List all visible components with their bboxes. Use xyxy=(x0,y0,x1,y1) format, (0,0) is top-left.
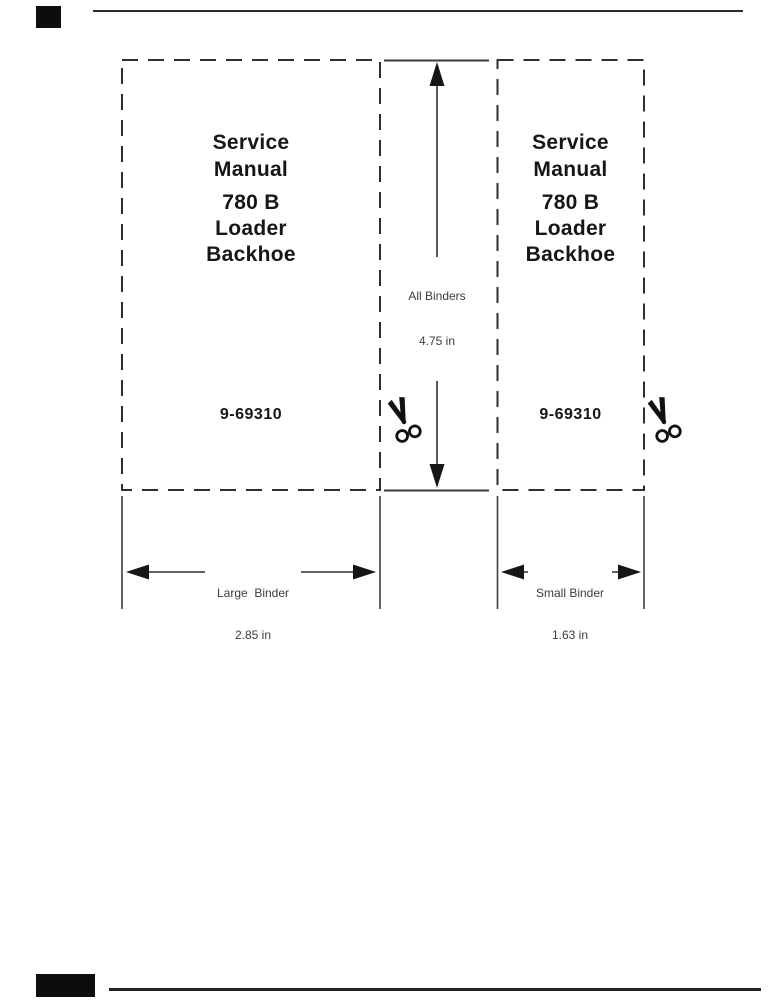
large-binder-outline xyxy=(122,60,380,490)
small-binder-width-dimension-label: Small Binder 1.63 in xyxy=(528,557,612,671)
small-binder-model-line3: Backhoe xyxy=(497,242,644,268)
scissors-icon xyxy=(646,396,686,446)
all-binders-value: 4.75 in xyxy=(389,334,485,349)
small-binder-part-number: 9-69310 xyxy=(497,406,644,424)
large-binder-model-line1: 780 B xyxy=(122,190,380,216)
large-width-arrowhead-right xyxy=(353,565,376,580)
small-width-arrowhead-right xyxy=(618,565,641,580)
height-arrowhead-down xyxy=(430,464,445,488)
small-width-arrowhead-left xyxy=(501,565,524,580)
large-binder-model-line2: Loader xyxy=(122,216,380,242)
large-binder-model-line3: Backhoe xyxy=(122,242,380,268)
large-binder-title-line2: Manual xyxy=(122,156,380,183)
large-binder-label: Large Binder xyxy=(205,586,301,600)
large-binder-spine-label: Service Manual 780 B Loader Backhoe xyxy=(122,129,380,268)
small-binder-model-line2: Loader xyxy=(497,216,644,242)
scissors-icon xyxy=(386,396,426,446)
large-binder-width-dimension-label: Large Binder 2.85 in xyxy=(205,557,301,671)
large-binder-part-number: 9-69310 xyxy=(122,406,380,424)
large-width-arrowhead-left xyxy=(126,565,149,580)
small-binder-model-line1: 780 B xyxy=(497,190,644,216)
large-binder-title-line1: Service xyxy=(122,129,380,156)
cut-template-linework xyxy=(0,0,774,1000)
height-arrowhead-up xyxy=(430,62,445,86)
small-binder-title-line2: Manual xyxy=(497,156,644,183)
small-binder-outline xyxy=(498,60,645,490)
manual-page: Service Manual 780 B Loader Backhoe 9-69… xyxy=(0,0,774,1000)
small-binder-title-line1: Service xyxy=(497,129,644,156)
all-binders-height-dimension-label: All Binders 4.75 in xyxy=(389,257,485,381)
small-binder-spine-label: Service Manual 780 B Loader Backhoe xyxy=(497,129,644,268)
large-binder-value: 2.85 in xyxy=(205,628,301,642)
small-binder-value: 1.63 in xyxy=(528,628,612,642)
all-binders-label: All Binders xyxy=(389,289,485,304)
small-binder-label: Small Binder xyxy=(528,586,612,600)
